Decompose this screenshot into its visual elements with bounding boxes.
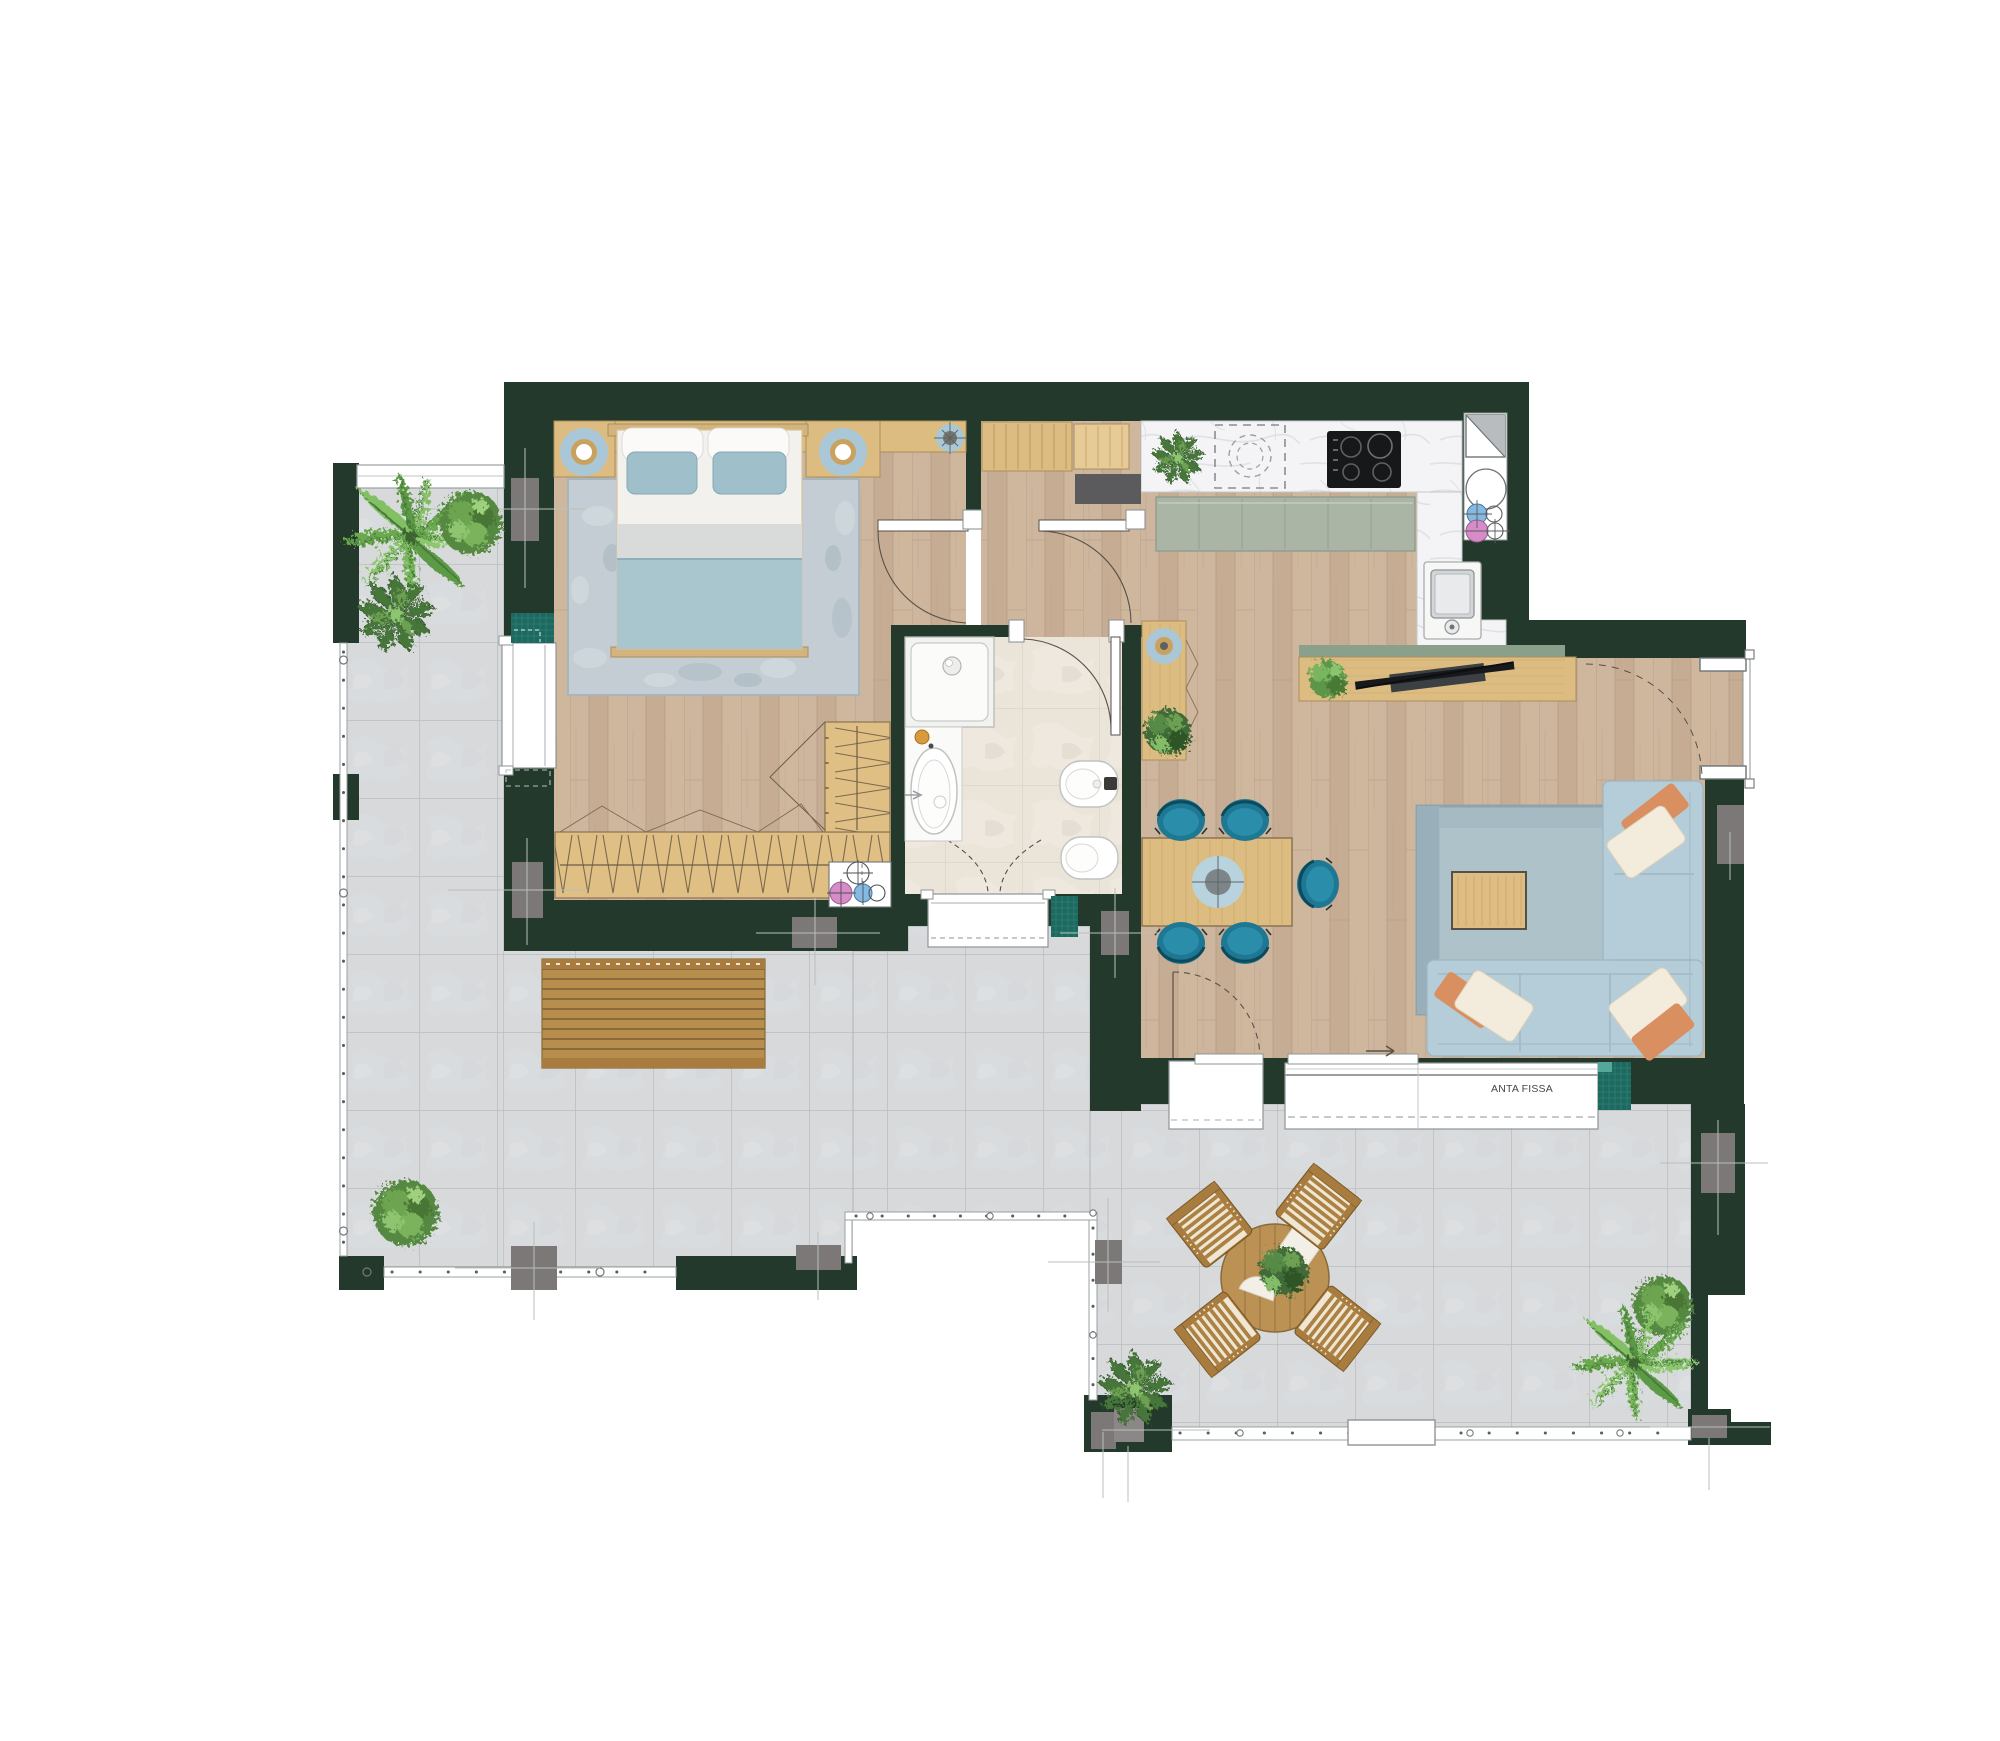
svg-text:ANTA FISSA: ANTA FISSA — [1491, 1083, 1553, 1095]
